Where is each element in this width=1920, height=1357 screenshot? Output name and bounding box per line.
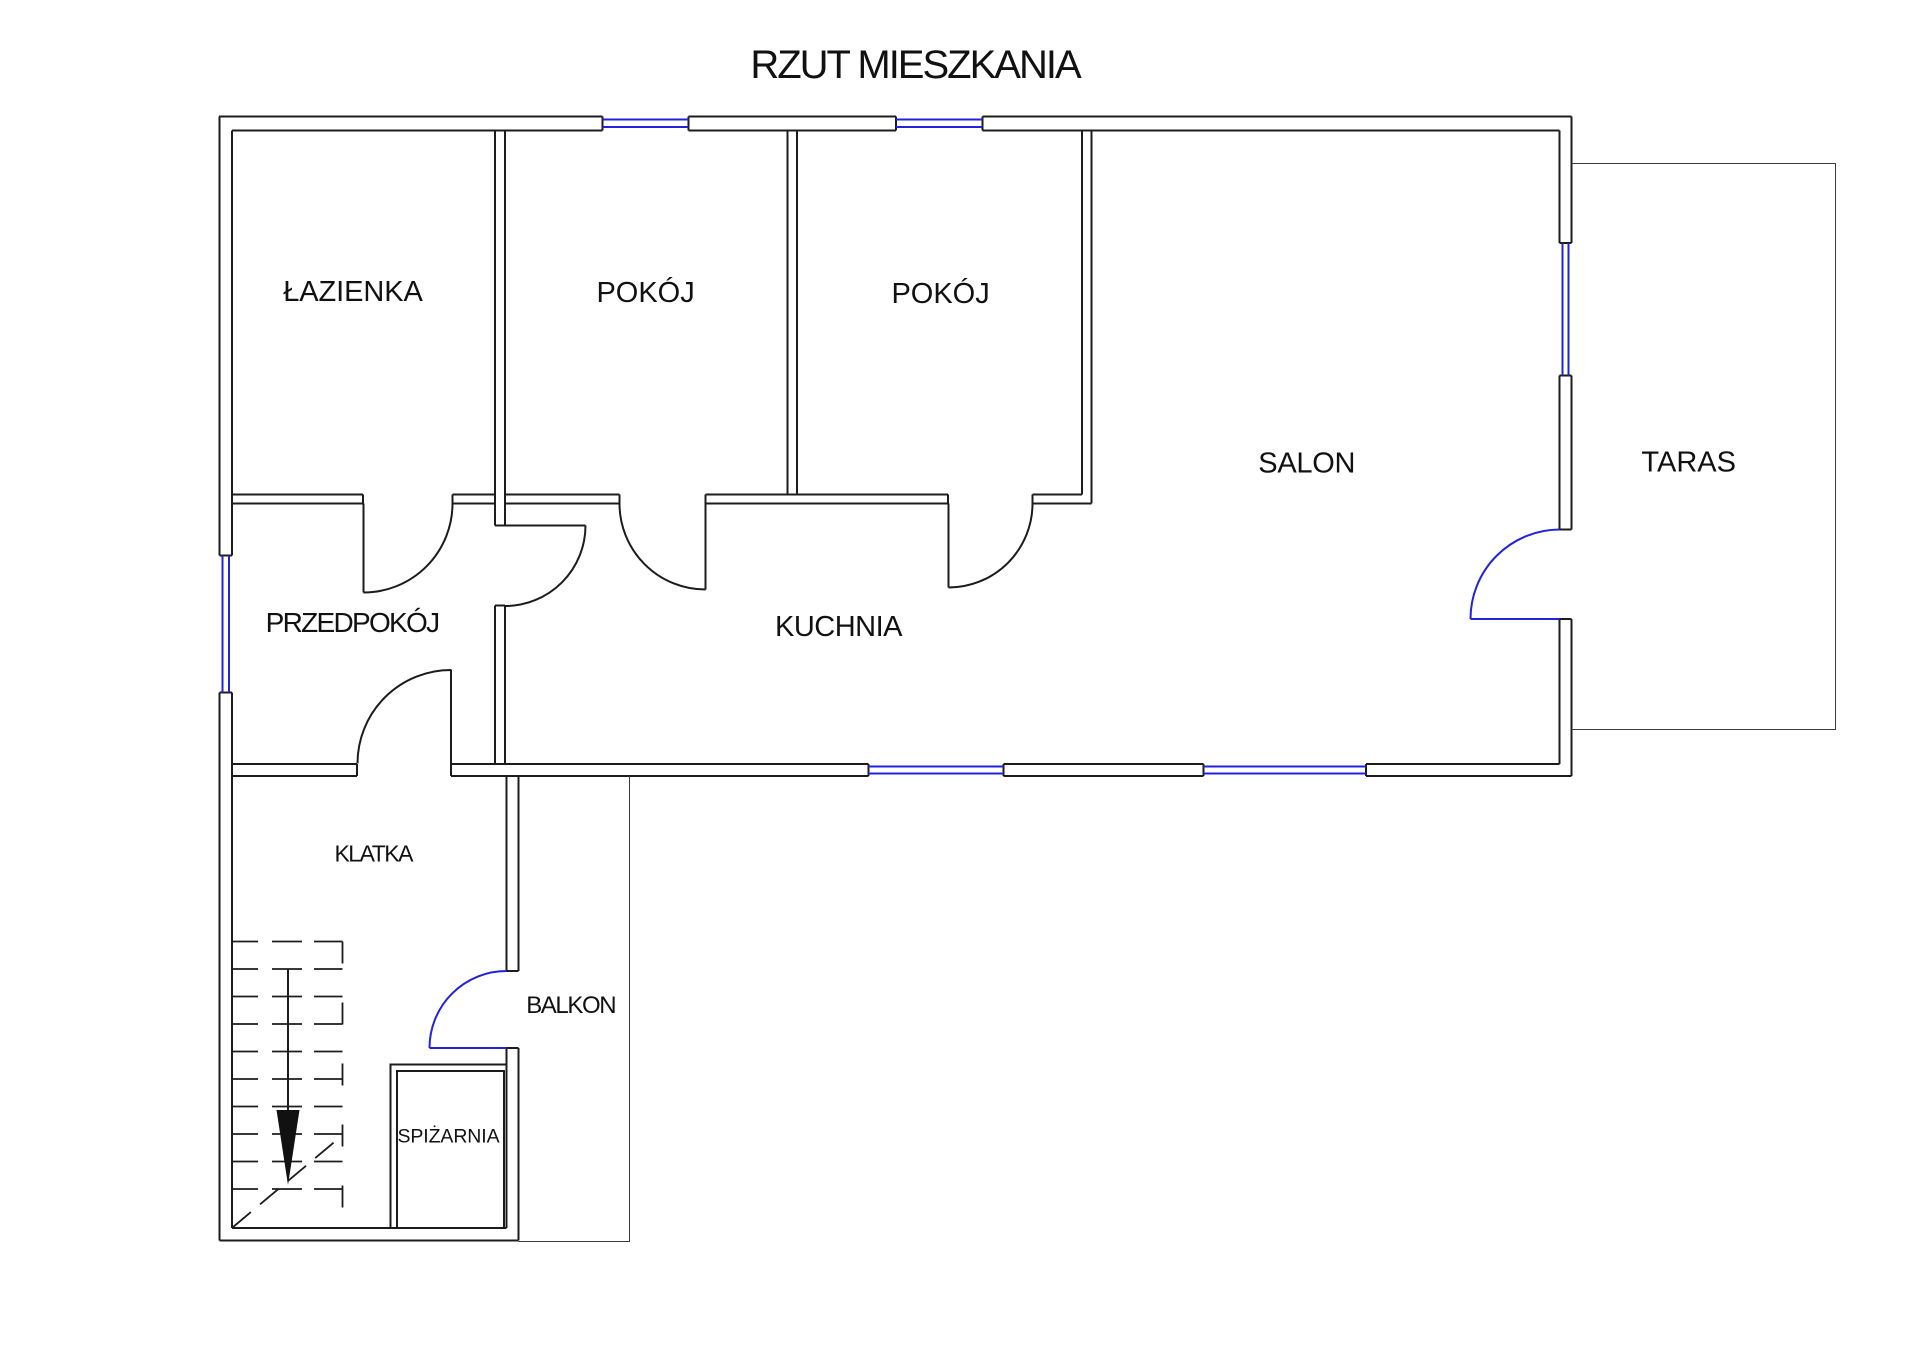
svg-text:POKÓJ: POKÓJ — [891, 277, 989, 310]
svg-text:ŁAZIENKA: ŁAZIENKA — [283, 276, 423, 308]
svg-text:PRZEDPOKÓJ: PRZEDPOKÓJ — [266, 607, 439, 638]
svg-text:KUCHNIA: KUCHNIA — [775, 611, 903, 643]
svg-text:SALON: SALON — [1258, 448, 1355, 480]
svg-text:TARAS: TARAS — [1641, 447, 1736, 479]
svg-text:POKÓJ: POKÓJ — [596, 276, 694, 309]
svg-text:KLATKA: KLATKA — [334, 841, 414, 867]
svg-text:RZUT MIESZKANIA: RZUT MIESZKANIA — [750, 43, 1082, 87]
svg-text:BALKON: BALKON — [526, 992, 615, 1019]
svg-text:SPIŻARNIA: SPIŻARNIA — [397, 1125, 499, 1148]
